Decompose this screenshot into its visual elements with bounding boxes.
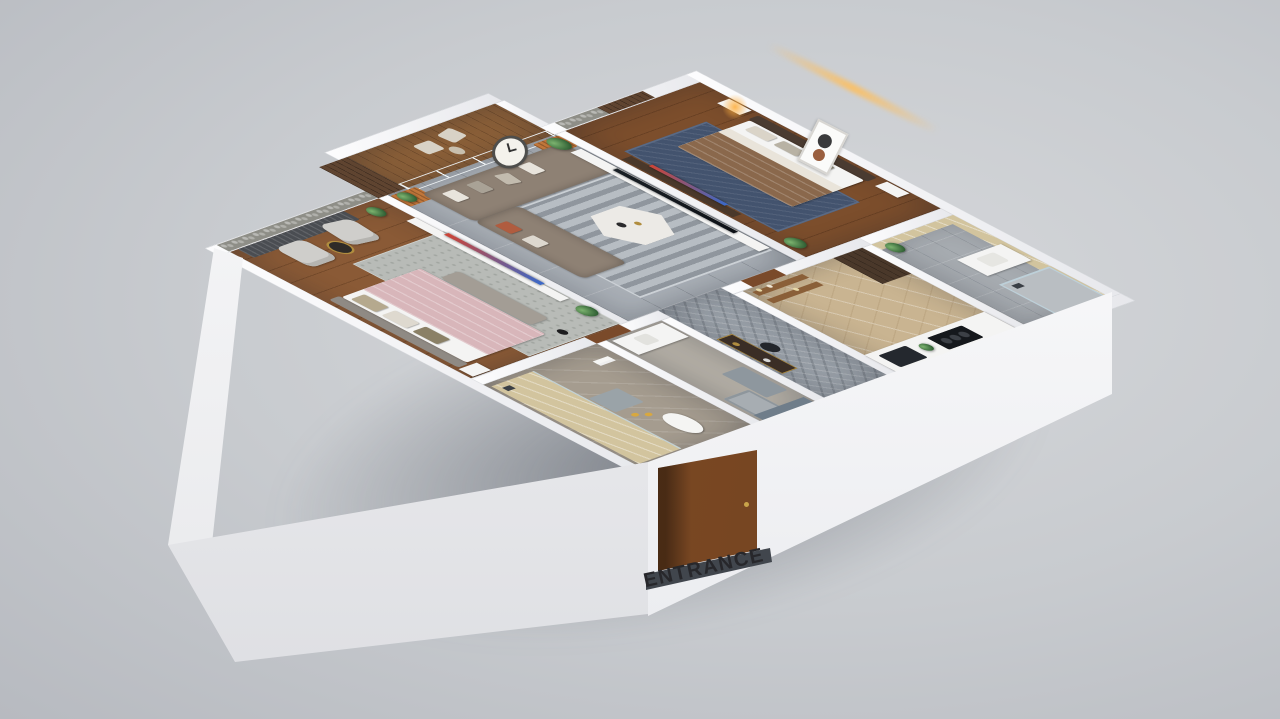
bedside-lamp-glow	[722, 94, 748, 120]
door-handle-icon	[744, 502, 749, 507]
scene-3d-floorplan: { "labels": { "entrance": "ENTRANCE" }, …	[0, 0, 1280, 719]
